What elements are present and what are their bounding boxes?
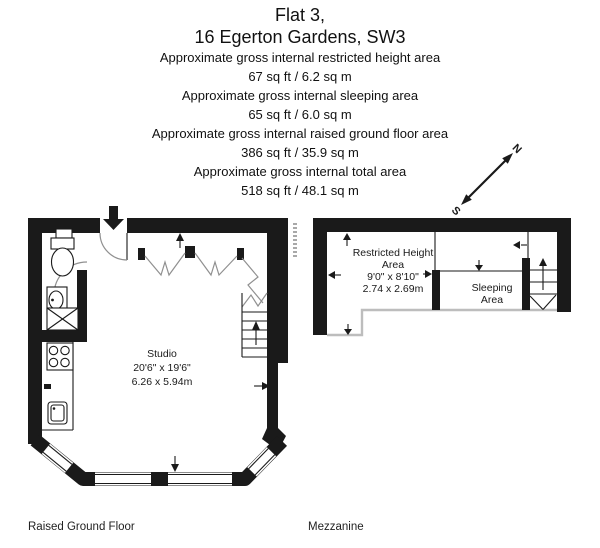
- wall-stud: [185, 246, 195, 258]
- sink-drain: [53, 407, 56, 410]
- right-wall-lower: [267, 363, 278, 431]
- toilet-tank: [51, 238, 74, 249]
- page-subtitle: 16 Egerton Gardens, SW3: [0, 26, 600, 48]
- stair-winder: [543, 295, 556, 310]
- bay-wall: [35, 440, 282, 479]
- hob-burner: [61, 358, 69, 366]
- raised-ground-floor-plan: Studio 20'6" x 19'6" 6.26 x 5.94m: [20, 200, 305, 515]
- vertical-watermark: [293, 223, 297, 257]
- stair-winder: [530, 296, 543, 310]
- left-wall: [28, 218, 42, 444]
- measure-arrow-icon: [425, 270, 432, 278]
- mezzanine-caption: Mezzanine: [308, 521, 364, 533]
- left-wall: [313, 232, 327, 335]
- measure-arrow-icon: [343, 233, 351, 240]
- studio-dims-imperial: 20'6" x 19'6": [133, 362, 191, 374]
- toilet-cistern: [56, 229, 72, 238]
- compass-line: [468, 160, 506, 198]
- wardrobe-bifold-door: [195, 253, 237, 275]
- floorplan-page: Flat 3, 16 Egerton Gardens, SW3 Approxim…: [0, 0, 600, 548]
- mezzanine-plan: Restricted Height Area 9'0" x 8'10" 2.74…: [312, 218, 590, 348]
- kitchen-handle: [44, 384, 51, 389]
- basin-bowl: [49, 291, 63, 309]
- measure-arrow-icon: [171, 464, 179, 472]
- bay-window-gap: [46, 449, 69, 468]
- entrance-arrow-icon: [103, 219, 124, 230]
- measure-arrow-icon: [328, 271, 335, 279]
- hob-burner: [49, 358, 57, 366]
- hob-burner: [61, 346, 69, 354]
- area-line: Approximate gross internal sleeping area: [0, 86, 600, 105]
- area-line: 67 sq ft / 6.2 sq m: [0, 67, 600, 86]
- bathroom-wall-bottom: [42, 330, 87, 342]
- right-wall: [557, 232, 571, 312]
- studio-label: Studio: [147, 348, 177, 360]
- raised-ground-floor-caption: Raised Ground Floor: [28, 521, 135, 533]
- restricted-dims-metric: 2.74 x 2.69m: [363, 283, 424, 295]
- stairs-up-arrow-icon: [252, 321, 260, 330]
- sleeping-wall-right: [522, 258, 530, 310]
- top-wall-right: [127, 218, 288, 233]
- measure-arrow-icon: [475, 265, 483, 271]
- studio-dims-metric: 6.26 x 5.94m: [132, 376, 193, 388]
- hob-burner: [49, 346, 57, 354]
- compass: N S: [452, 138, 530, 220]
- sleeping-wall-left: [432, 270, 440, 310]
- sleeping-label: Sleeping: [472, 282, 513, 294]
- compass-south-label: S: [452, 204, 463, 218]
- restricted-label: Restricted Height: [353, 247, 434, 259]
- area-line: 65 sq ft / 6.0 sq m: [0, 105, 600, 124]
- entrance-door-swing: [100, 233, 127, 260]
- right-wall-upper: [267, 218, 288, 363]
- page-title: Flat 3,: [0, 4, 600, 26]
- sink-basin: [51, 405, 64, 421]
- basin-tap-icon: [51, 299, 54, 302]
- top-wall: [313, 218, 571, 232]
- area-line: Approximate gross internal restricted he…: [0, 48, 600, 67]
- open-boundary: [327, 310, 557, 335]
- wardrobe-bifold-door: [145, 253, 185, 275]
- restricted-dims-imperial: 9'0" x 8'10": [367, 271, 419, 283]
- sleeping-label: Area: [481, 294, 503, 306]
- stairs-up-arrow-icon: [539, 258, 547, 266]
- closet-bifold-door: [242, 293, 267, 307]
- entrance-arrow-stem: [109, 206, 118, 219]
- measure-arrow-icon: [176, 233, 184, 241]
- toilet-bowl: [52, 248, 74, 276]
- restricted-label: Area: [382, 259, 404, 271]
- measure-arrow-icon: [513, 241, 520, 249]
- wall-stud: [138, 248, 145, 260]
